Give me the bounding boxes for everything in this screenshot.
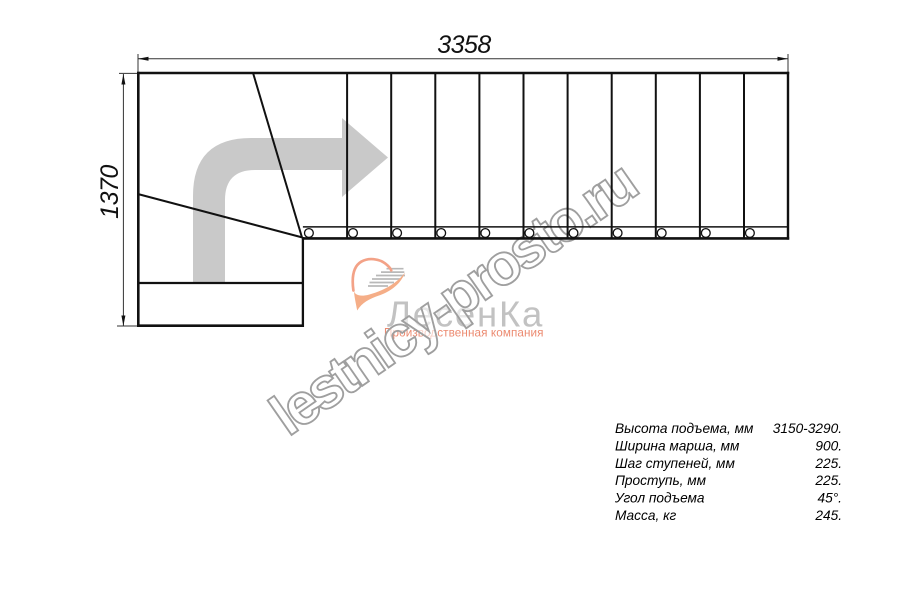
svg-text:1370: 1370 xyxy=(96,165,124,219)
svg-text:Высота подъема, мм: Высота подъема, мм xyxy=(615,421,754,436)
svg-text:Масса, кг: Масса, кг xyxy=(615,508,677,523)
svg-text:900.: 900. xyxy=(815,438,842,453)
svg-text:Шаг ступеней, мм: Шаг ступеней, мм xyxy=(615,456,735,471)
svg-text:225.: 225. xyxy=(814,473,842,488)
svg-text:Проступь, мм: Проступь, мм xyxy=(615,473,707,488)
svg-text:Угол подъема: Угол подъема xyxy=(614,491,705,506)
svg-text:225.: 225. xyxy=(814,456,842,471)
svg-text:Ширина марша, мм: Ширина марша, мм xyxy=(615,438,740,453)
svg-text:3150-3290.: 3150-3290. xyxy=(773,421,842,436)
svg-text:45°.: 45°. xyxy=(817,491,842,506)
svg-text:245.: 245. xyxy=(814,508,842,523)
svg-text:3358: 3358 xyxy=(437,31,491,59)
